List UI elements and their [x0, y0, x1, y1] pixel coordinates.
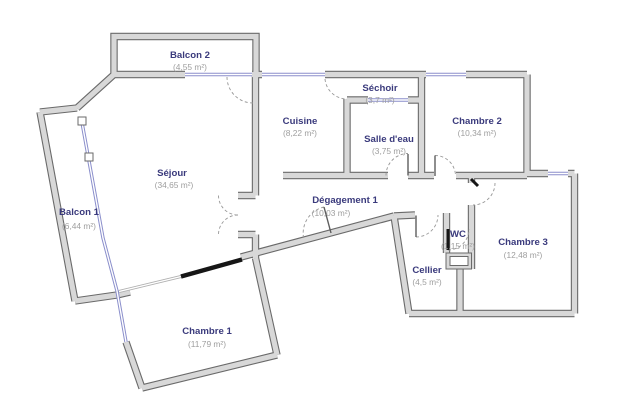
- wc-closet: [446, 253, 472, 269]
- room-name-balcon-2: Balcon 2: [170, 50, 210, 61]
- room-area-cuisine: (8,22 m²): [283, 128, 317, 138]
- room-area-balcon-2: (4,55 m²): [173, 62, 207, 72]
- room-name-chambre-2: Chambre 2: [452, 116, 502, 127]
- room-area-chambre-2: (10,34 m²): [458, 128, 497, 138]
- room-area-sejour: (34,65 m²): [155, 180, 194, 190]
- room-name-chambre-1: Chambre 1: [182, 326, 232, 337]
- room-area-degagement-1: (10,03 m²): [312, 208, 351, 218]
- room-name-salle-deau: Salle d'eau: [364, 134, 414, 145]
- room-area-wc: (1,15 m²): [441, 241, 475, 251]
- room-area-cellier: (4,5 m²): [412, 277, 442, 287]
- room-area-chambre-3: (12,48 m²): [504, 250, 543, 260]
- room-name-balcon-1: Balcon 1: [59, 207, 100, 218]
- room-name-sechoir: Séchoir: [362, 83, 397, 94]
- floor-plan: Balcon 2 (4,55 m²) Cuisine (8,22 m²) Séc…: [0, 0, 640, 418]
- glazing-post: [78, 117, 86, 125]
- glazing-post: [85, 153, 93, 161]
- room-area-balcon-1: (6,44 m²): [62, 221, 96, 231]
- room-area-sechoir: (3,7 m²): [365, 95, 395, 105]
- floor-plan-canvas: Balcon 2 (4,55 m²) Cuisine (8,22 m²) Séc…: [0, 0, 640, 418]
- room-name-cellier: Cellier: [412, 265, 442, 276]
- room-name-degagement-1: Dégagement 1: [312, 195, 378, 206]
- room-name-chambre-3: Chambre 3: [498, 237, 548, 248]
- room-name-wc: WC: [450, 229, 466, 240]
- room-name-cuisine: Cuisine: [283, 116, 318, 127]
- closet-inner: [450, 257, 468, 266]
- room-name-sejour: Séjour: [157, 168, 187, 179]
- room-area-chambre-1: (11,79 m²): [188, 339, 226, 349]
- room-area-salle-deau: (3,75 m²): [372, 146, 406, 156]
